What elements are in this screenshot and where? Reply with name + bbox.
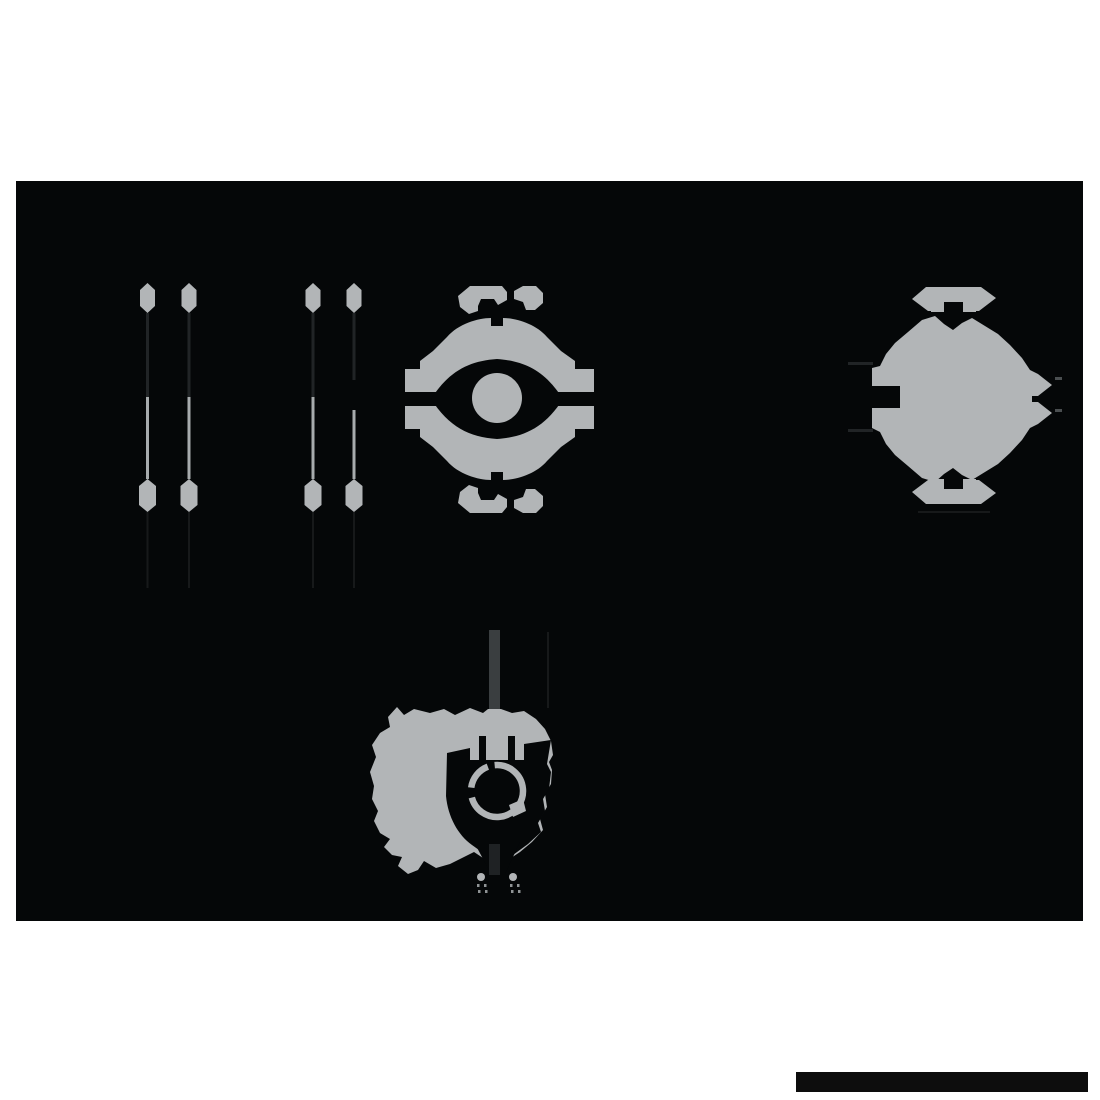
perspective-view-slot-left [479, 736, 486, 761]
rail-1-lower-shaft [146, 397, 149, 479]
rail-2-tail-line [188, 512, 190, 588]
perspective-view-tiny-dot-5 [478, 890, 481, 893]
technical-drawing-svg [0, 0, 1100, 1100]
perspective-view-tiny-dot-6 [485, 890, 488, 893]
front-view-right-wing-upper [556, 369, 594, 392]
perspective-view-tiny-dot-1 [477, 884, 480, 887]
front-view-eye [472, 373, 522, 423]
rail-1-upper-shaft [146, 313, 149, 397]
rail-4-lower-shaft [353, 410, 356, 479]
rail-2-upper-shaft [188, 313, 191, 397]
rail-2-bottom-cap [181, 479, 198, 512]
front-view-right-wing-lower [556, 406, 594, 429]
footer-bar [796, 1072, 1088, 1092]
rail-3-lower-shaft [312, 397, 315, 479]
perspective-view-tiny-dot-8 [518, 890, 521, 893]
side-view-left-callout-line-upper [848, 362, 873, 365]
rail-4-tail-line [353, 512, 355, 588]
perspective-view-faint-line [547, 632, 549, 708]
side-view-right-dash-upper [1055, 377, 1062, 380]
perspective-view-dot-left [477, 873, 485, 881]
rail-1-tail-line [147, 512, 149, 588]
side-view-under-line [918, 511, 990, 513]
rail-4-bottom-cap [346, 479, 363, 512]
side-view-left-callout-line-lower [848, 429, 873, 432]
shape-layer [16, 181, 1088, 1092]
perspective-view-tiny-dot-7 [511, 890, 514, 893]
perspective-view-slot-right [508, 736, 515, 761]
rail-4-upper-shaft [353, 313, 356, 380]
rail-3-tail-line [312, 512, 314, 588]
perspective-view-pole-upper [489, 630, 500, 712]
rail-2-lower-shaft [188, 397, 191, 479]
perspective-view-pole-lower [489, 844, 500, 875]
perspective-view-tiny-dot-3 [510, 884, 513, 887]
side-view-right-dash-lower [1055, 409, 1062, 412]
rail-1-bottom-cap [139, 479, 156, 512]
front-view-left-wing-lower [405, 406, 443, 429]
rail-3-bottom-cap [305, 479, 322, 512]
rail-3-upper-shaft [312, 313, 315, 397]
page [0, 0, 1100, 1100]
perspective-view-tiny-dot-4 [517, 884, 520, 887]
perspective-view-tiny-dot-2 [484, 884, 487, 887]
front-view-left-wing-upper [405, 369, 443, 392]
perspective-view-dot-right [509, 873, 517, 881]
